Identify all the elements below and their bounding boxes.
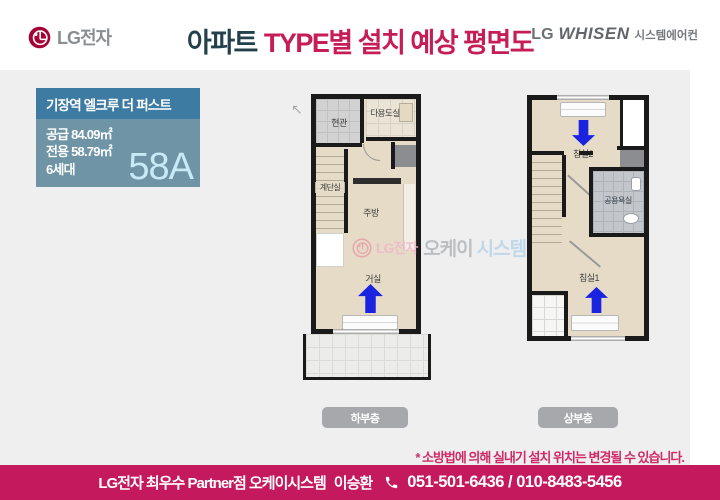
wall [366, 137, 416, 141]
stairwell-area [532, 155, 562, 247]
fire-code-note: * 소방법에 의해 실내기 설치 위치는 변경될 수 있습니다. [415, 447, 684, 466]
page-title-accent: TYPE별 설치 예상 평면도 [264, 28, 533, 58]
balcony-area [303, 334, 431, 380]
complex-info-box: 기장역 엘크루 더 퍼스트 공급 84.09㎡ 전용 58.79㎡ 6세대 58… [36, 88, 200, 187]
living-room-label: 거실 [359, 272, 387, 285]
storage-fixture [316, 233, 344, 267]
bedroom1-label: 침실1 [571, 271, 607, 284]
plan-board: 기장역 엘크루 더 퍼스트 공급 84.09㎡ 전용 58.79㎡ 6세대 58… [0, 70, 690, 465]
upper-floor-plan: 침실2 공용욕실 침실1 [527, 95, 649, 341]
watermark-okay-label: 오케이 [423, 234, 472, 261]
dress-room-area [532, 295, 564, 336]
toilet-fixture [623, 213, 639, 224]
upper-floor-tag: 상부층 [538, 407, 618, 428]
complex-name: 기장역 엘크루 더 퍼스트 [36, 88, 200, 119]
wall [564, 295, 568, 336]
entrance-label: 현관 [321, 116, 357, 129]
whisen-lg-label: LG [531, 26, 553, 44]
contact-person: 이승환 [334, 472, 372, 493]
whisen-brand-label: WHISEN [559, 24, 630, 44]
indoor-ac-unit [571, 315, 619, 331]
closet-fixture [620, 100, 644, 146]
stairwell-label: 계단실 [315, 182, 345, 193]
lower-plan-body: 현관 다용도실 계단실 주방 [311, 94, 421, 334]
indoor-ac-unit [342, 315, 398, 330]
duct-shaft [620, 150, 644, 167]
lg-symbol-watermark-icon [352, 238, 372, 258]
wall [316, 143, 362, 147]
utility-room-label: 다용도실 [366, 107, 404, 119]
header: LG전자 아파트TYPE별 설치 예상 평면도 LG WHISEN 시스템에어컨 [0, 0, 720, 70]
window [571, 336, 625, 341]
sink-fixture [631, 177, 641, 191]
dealer-name: LG전자 최우수 Partner점 오케이시스템 [98, 472, 325, 493]
phone-icon [384, 475, 399, 490]
entry-direction-arrow-icon: ↖ [291, 102, 303, 118]
indoor-ac-unit [560, 102, 606, 117]
page-title-dark: 아파트 [187, 28, 257, 58]
complex-info-body: 공급 84.09㎡ 전용 58.79㎡ 6세대 58A [36, 119, 200, 187]
bathroom-label: 공용욕실 [593, 195, 643, 206]
watermark-lg-label: LG전자 [376, 238, 417, 258]
supply-area: 공급 84.09㎡ [46, 126, 200, 143]
dealer-watermark: LG전자 오케이 시스템 [352, 234, 526, 261]
wall [360, 99, 364, 143]
phone-numbers: 051-501-6436 / 010-8483-5456 [407, 473, 621, 492]
wall [589, 167, 644, 171]
type-code: 58A [128, 148, 193, 186]
kitchen-label: 주방 [355, 206, 387, 219]
whisen-logo: LG WHISEN 시스템에어컨 [531, 24, 698, 44]
wall [391, 142, 395, 169]
upper-plan-body: 침실2 공용욕실 침실1 [527, 95, 649, 341]
watermark-system-label: 시스템 [477, 234, 526, 261]
window [557, 95, 609, 100]
lower-floor-tag: 하부층 [322, 407, 408, 428]
kitchen-counter-dark [353, 178, 401, 184]
wall [589, 233, 644, 237]
wall [579, 151, 593, 155]
wall [562, 155, 566, 217]
flyer-page: LG전자 아파트TYPE별 설치 예상 평면도 LG WHISEN 시스템에어컨… [0, 0, 720, 500]
footer-contact-bar: LG전자 최우수 Partner점 오케이시스템 이승환 051-501-643… [0, 465, 720, 500]
whisen-suffix-label: 시스템에어컨 [635, 27, 698, 43]
duct-shaft [395, 145, 416, 167]
